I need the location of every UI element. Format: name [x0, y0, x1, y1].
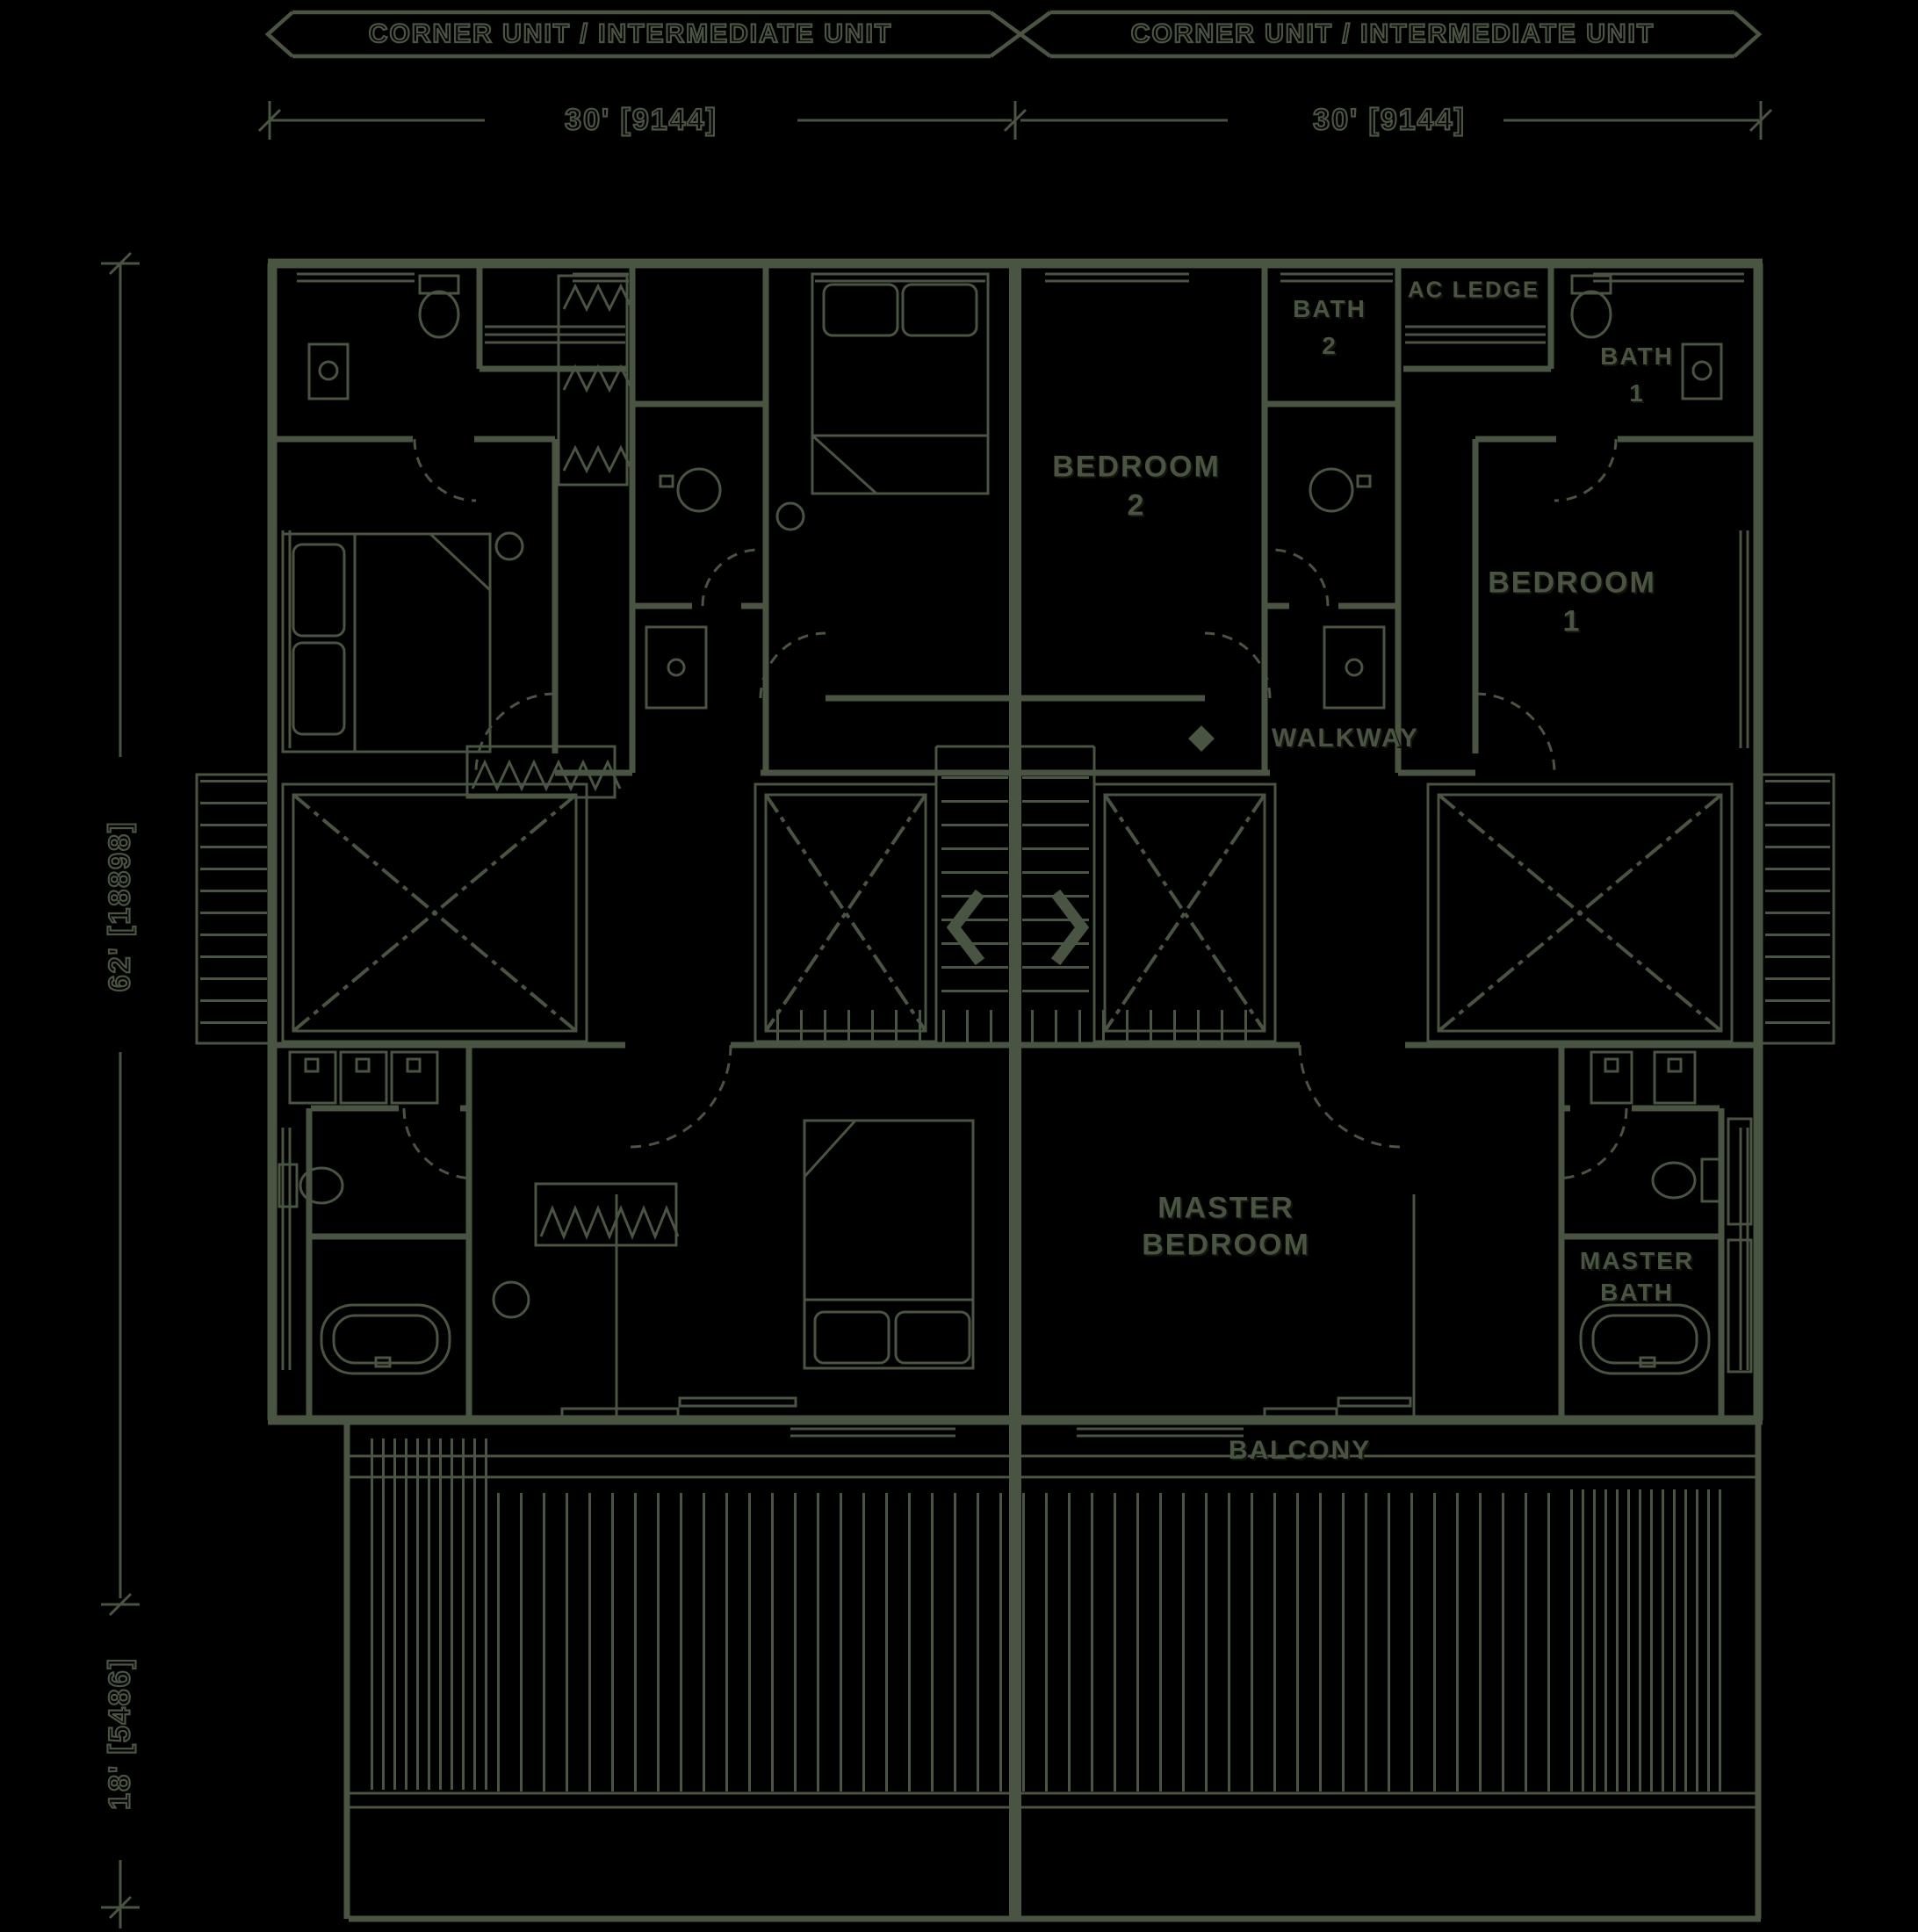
- banner-left: CORNER UNIT / INTERMEDIATE UNIT: [369, 19, 892, 49]
- room-label-master-bedroom-line2: BEDROOM: [1142, 1229, 1310, 1263]
- room-label-bedroom2-line2: 2: [1128, 489, 1146, 523]
- stair-lower-flight-left-unit: [776, 1010, 1008, 1043]
- room-label-bath1-line1: BATH: [1600, 342, 1674, 371]
- room-label-master-bedroom-line1: MASTER: [1157, 1192, 1294, 1226]
- ac-louver-panel-right: [1765, 780, 1830, 1040]
- stair-lower-flight-right-unit: [1031, 1010, 1268, 1043]
- room-label-bedroom2-line1: BEDROOM: [1052, 451, 1221, 485]
- room-label-ac-ledge: AC LEDGE: [1408, 277, 1539, 304]
- room-label-bath2-line2: 2: [1322, 332, 1338, 360]
- room-label-balcony: BALCONY: [1229, 1436, 1371, 1466]
- wardrobes: [467, 276, 678, 1245]
- balcony-screen-left: [371, 1438, 490, 1790]
- dimension-top-left: 30' [9144]: [565, 104, 717, 138]
- floor-plan-page: CORNER UNIT / INTERMEDIATE UNIT CORNER U…: [0, 0, 1918, 1932]
- stair-flight-right-unit: [1022, 776, 1089, 1010]
- balcony-screen-right: [1570, 1489, 1721, 1791]
- dimension-top-right: 30' [9144]: [1313, 104, 1466, 138]
- balcony-railing-slats: [497, 1493, 1561, 1791]
- room-label-bedroom1-line2: 1: [1563, 605, 1582, 639]
- room-label-bedroom1-line1: BEDROOM: [1488, 566, 1656, 601]
- ac-louver-panel-left: [200, 780, 267, 1040]
- dimension-side-lower: 18' [5486]: [104, 1657, 138, 1810]
- room-label-master-bath-line1: MASTER: [1580, 1247, 1694, 1275]
- room-label-master-bath-line2: BATH: [1600, 1279, 1674, 1307]
- room-label-bath1-line2: 1: [1629, 379, 1645, 407]
- stair-flight-left-unit: [941, 776, 1008, 1010]
- room-label-walkway: WALKWAY: [1272, 724, 1419, 753]
- room-label-bath2-line1: BATH: [1293, 295, 1366, 323]
- dimension-side-upper: 62' [18898]: [104, 821, 138, 992]
- walkway-grid-marker-diamond: [1188, 725, 1215, 752]
- banner-right: CORNER UNIT / INTERMEDIATE UNIT: [1131, 19, 1655, 49]
